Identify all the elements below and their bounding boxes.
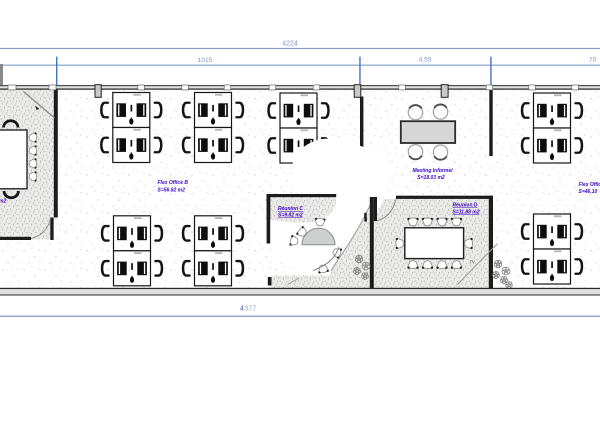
svg-text:4: 4 bbox=[240, 306, 244, 313]
svg-text:TV: TV bbox=[470, 260, 476, 265]
svg-text:377: 377 bbox=[245, 306, 257, 313]
svg-text:4224: 4224 bbox=[282, 41, 298, 48]
svg-text:S=11.88 m2: S=11.88 m2 bbox=[453, 210, 480, 216]
svg-text:Flex Office B: Flex Office B bbox=[158, 180, 189, 186]
svg-text:S=9.82 m2: S=9.82 m2 bbox=[278, 213, 303, 219]
svg-text:Flex Offic: Flex Offic bbox=[579, 182, 600, 188]
svg-text:1015: 1015 bbox=[198, 57, 213, 64]
svg-text:m2: m2 bbox=[0, 199, 6, 205]
svg-text:70: 70 bbox=[589, 56, 597, 63]
svg-text:Réunion C: Réunion C bbox=[278, 206, 303, 212]
svg-text:4.55: 4.55 bbox=[419, 56, 432, 63]
svg-text:S=46.10: S=46.10 bbox=[579, 189, 598, 195]
svg-text:S=18.03 m2: S=18.03 m2 bbox=[417, 175, 445, 181]
svg-text:Meeting Informel: Meeting Informel bbox=[412, 168, 453, 174]
svg-text:S=56.82 m2: S=56.82 m2 bbox=[158, 187, 186, 193]
svg-text:Réunion D: Réunion D bbox=[453, 203, 478, 209]
